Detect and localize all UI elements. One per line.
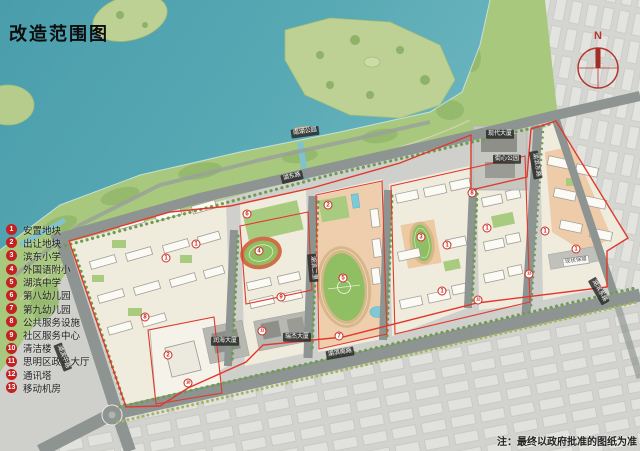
legend: 1安置地块2出让地块3滨东小学4外国语附小5湖滨中学6第八幼儿园7第九幼儿园8公… xyxy=(6,224,90,395)
legend-label: 安置地块 xyxy=(23,223,61,237)
legend-label: 滨东小学 xyxy=(23,249,61,263)
legend-label: 社区服务中心 xyxy=(23,328,80,342)
legend-item: 8公共服务设施 xyxy=(6,316,90,327)
legend-marker: 4 xyxy=(6,264,17,275)
legend-item: 12通讯塔 xyxy=(6,369,90,380)
legend-item: 2出让地块 xyxy=(6,237,90,248)
compass-needle xyxy=(596,49,601,69)
legend-marker: 5 xyxy=(6,277,17,288)
base-map-art xyxy=(0,0,640,451)
legend-item: 7第九幼儿园 xyxy=(6,303,90,314)
legend-marker: 6 xyxy=(6,290,17,301)
legend-marker: 11 xyxy=(6,356,17,367)
compass-n-label: N xyxy=(594,30,602,42)
page-title: 改造范围图 xyxy=(9,20,109,46)
map-canvas: 改造范围图 1安置地块2出让地块3滨东小学4外国语附小5湖滨中学6第八幼儿园7第… xyxy=(0,0,640,451)
legend-item: 11思明区政务大厅 xyxy=(6,356,90,367)
legend-label: 第八幼儿园 xyxy=(23,288,71,302)
legend-marker: 3 xyxy=(6,250,17,261)
map-note: 注：最终以政府批准的图纸为准 xyxy=(497,433,637,448)
legend-marker: 9 xyxy=(6,330,17,341)
legend-item: 6第八幼儿园 xyxy=(6,290,90,301)
legend-label: 移动机房 xyxy=(23,381,61,395)
legend-item: 4外国语附小 xyxy=(6,264,90,275)
legend-label: 通讯塔 xyxy=(23,368,52,382)
legend-label: 思明区政务大厅 xyxy=(23,354,90,368)
legend-marker: 1 xyxy=(6,224,17,235)
legend-marker: 13 xyxy=(6,382,17,393)
legend-item: 5湖滨中学 xyxy=(6,277,90,288)
legend-label: 公共服务设施 xyxy=(23,315,80,329)
legend-label: 清洁楼 xyxy=(23,341,52,355)
legend-marker: 7 xyxy=(6,303,17,314)
legend-label: 外国语附小 xyxy=(23,262,71,276)
legend-item: 13移动机房 xyxy=(6,382,90,393)
legend-marker: 2 xyxy=(6,237,17,248)
legend-label: 第九幼儿园 xyxy=(23,302,71,316)
legend-marker: 8 xyxy=(6,316,17,327)
legend-item: 1安置地块 xyxy=(6,224,90,235)
legend-marker: 10 xyxy=(6,343,17,354)
legend-item: 3滨东小学 xyxy=(6,250,90,261)
legend-item: 9社区服务中心 xyxy=(6,330,90,341)
legend-label: 湖滨中学 xyxy=(23,275,61,289)
compass-art: N xyxy=(576,26,620,92)
legend-item: 10清洁楼 xyxy=(6,343,90,354)
legend-label: 出让地块 xyxy=(23,236,61,250)
compass: N xyxy=(576,26,620,92)
legend-marker: 12 xyxy=(6,369,17,380)
